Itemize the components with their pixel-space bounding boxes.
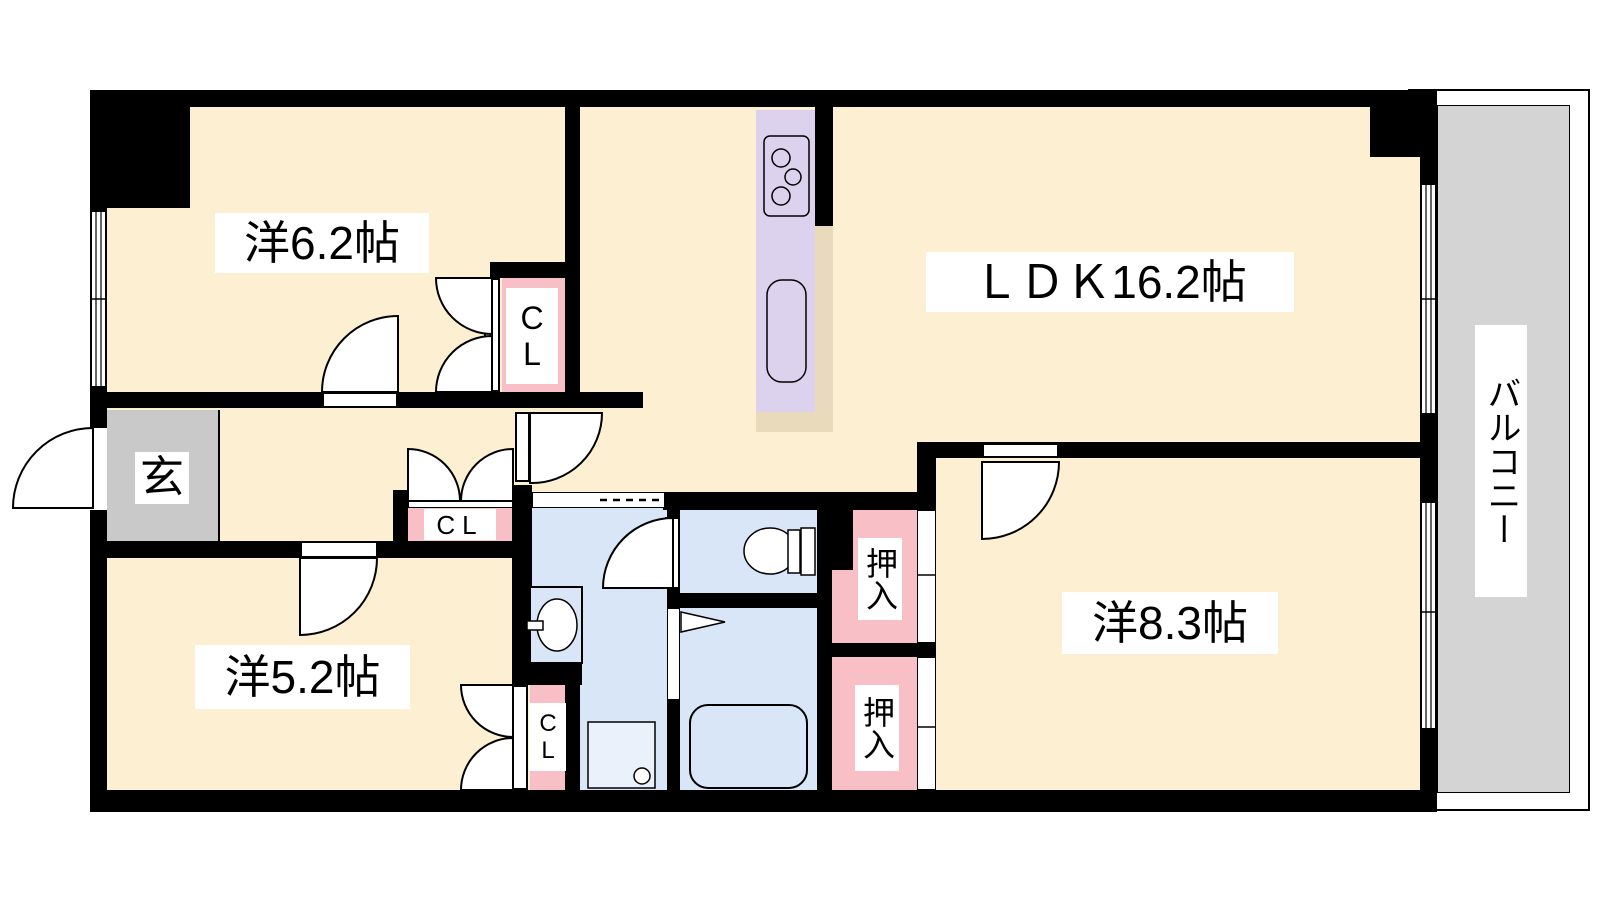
door-arc-entrance — [13, 428, 93, 508]
folding-door-mark-bath — [681, 612, 725, 632]
door-arc-room52 — [300, 558, 377, 635]
closet-label-hallway: CL — [424, 509, 496, 540]
bathtub-icon — [690, 705, 807, 788]
double-door-arc-hallcloset-left — [408, 449, 460, 501]
room-label-western-8-3: 洋8.3帖 — [1062, 592, 1278, 654]
room-label-balcony: バルコニー — [1475, 325, 1527, 597]
bifold-arc-closet62-top — [436, 278, 492, 334]
room-label-ldk: ＬＤＫ16.2帖 — [926, 252, 1294, 312]
bifold-arc-closet52-bottom — [461, 738, 513, 790]
toilet-tank-icon — [801, 528, 815, 575]
room-label-western-6-2: 洋6.2帖 — [215, 213, 429, 273]
bifold-arc-closet52-top — [461, 685, 513, 737]
oshiire-label-upper: 押入 — [858, 538, 902, 620]
door-arc-room62 — [322, 316, 398, 392]
door-arc-ldk — [530, 413, 602, 483]
door-arc-room83 — [982, 462, 1059, 539]
double-door-arc-hallcloset-right — [461, 449, 513, 501]
room-label-western-5-2: 洋5.2帖 — [195, 645, 410, 709]
stove-burner-icon — [785, 169, 801, 185]
closet-label-room62: CL — [506, 288, 558, 384]
faucet-icon — [527, 621, 543, 630]
oshiire-label-lower: 押入 — [855, 685, 899, 771]
drain-icon — [634, 768, 650, 784]
fixtures-and-door-arcs — [0, 0, 1600, 900]
room-label-entrance: 玄 — [135, 452, 189, 504]
closet-label-room52: CL — [529, 703, 566, 771]
door-arc-toilet — [603, 518, 673, 588]
floorplan-canvas: 洋6.2帖 ＬＤＫ16.2帖 洋5.2帖 洋8.3帖 玄 バルコニー CL CL… — [0, 0, 1600, 900]
bifold-arc-closet62-bottom — [436, 336, 492, 392]
stove-burner-icon — [772, 149, 790, 167]
stove-burner-icon — [772, 187, 790, 205]
kitchen-sink-icon — [767, 280, 806, 382]
toilet-tank-icon — [788, 530, 800, 573]
